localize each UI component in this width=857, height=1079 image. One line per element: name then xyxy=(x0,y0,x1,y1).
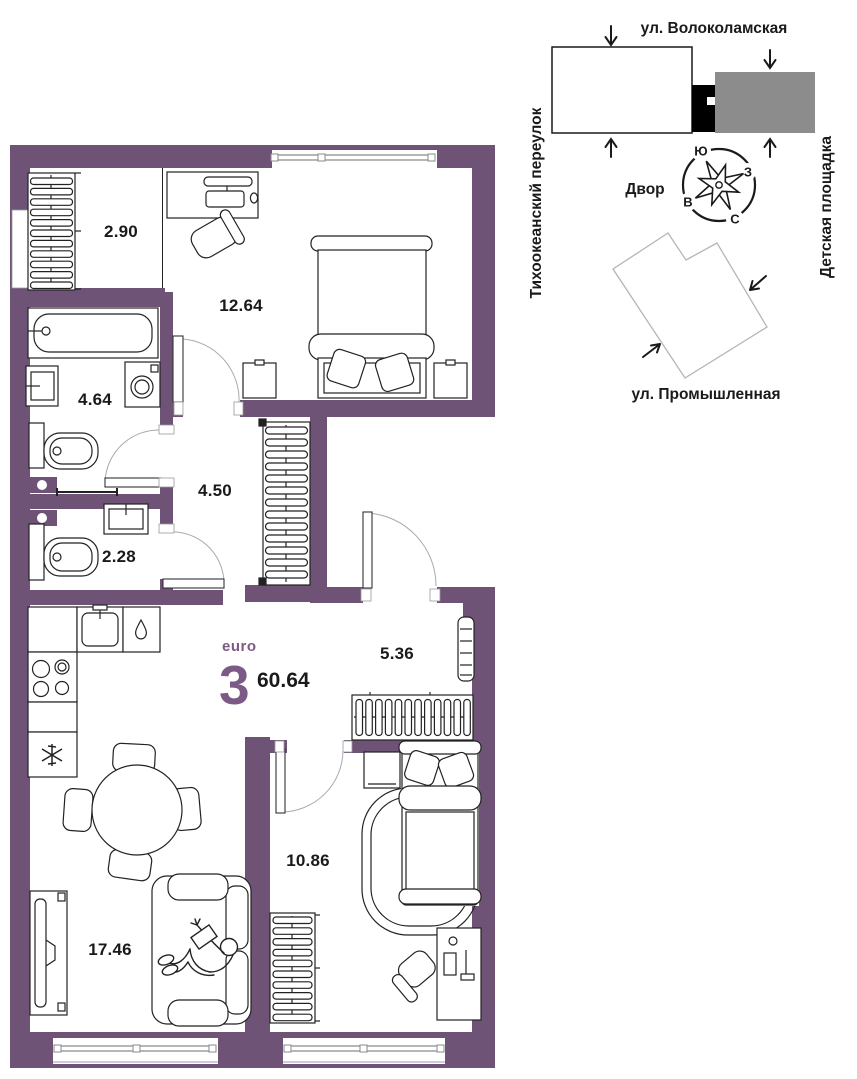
room-label-living: 17.46 xyxy=(88,940,132,960)
nightstand-bedroom2 xyxy=(364,752,400,788)
floorplan-page: 2.90 12.64 4.64 4.50 2.28 5.36 10.86 17.… xyxy=(0,0,857,1079)
wardrobe-entry xyxy=(352,692,473,740)
toilet-wc xyxy=(29,524,98,580)
total-area: 60.64 xyxy=(257,669,310,693)
desk-bedroom1 xyxy=(167,172,258,218)
playground-label: Детская площадка xyxy=(818,136,836,278)
courtyard-label: Двор xyxy=(625,181,664,199)
building-outline-white xyxy=(552,47,692,133)
wardrobe-bedroom2 xyxy=(270,913,320,1023)
wall-niches xyxy=(12,210,28,288)
bed-double xyxy=(243,236,467,398)
toilet-bathroom xyxy=(29,423,98,469)
room-label-wc: 2.28 xyxy=(102,547,136,567)
building-current-black xyxy=(692,85,715,132)
room-label-bedroom2: 10.86 xyxy=(286,851,330,871)
compass-north: С xyxy=(730,212,739,227)
desk-bedroom2 xyxy=(437,928,481,1020)
tv-unit xyxy=(30,891,67,1015)
stove xyxy=(28,652,77,702)
plan-drawing xyxy=(0,0,857,1079)
building-gray xyxy=(715,72,815,133)
room-label-bedroom1: 12.64 xyxy=(219,296,263,316)
bathtub xyxy=(28,308,158,358)
washbasin-wc xyxy=(104,504,148,534)
shoe-rack xyxy=(458,617,474,681)
building-outline-tilted xyxy=(613,233,767,378)
room-label-bathroom: 4.64 xyxy=(78,390,112,410)
building-current-notch xyxy=(707,97,715,105)
room-label-closet: 2.90 xyxy=(104,222,138,242)
compass-south: Ю xyxy=(694,144,707,159)
chair-bedroom2 xyxy=(387,947,444,1004)
compass-west: З xyxy=(744,165,752,180)
washing-machine xyxy=(125,362,160,407)
dining-set xyxy=(63,743,202,882)
street-label-top: ул. Волоколамская xyxy=(641,20,788,38)
street-label-bottom: ул. Промышленная xyxy=(631,386,780,404)
street-label-left: Тихоокеанский переулок xyxy=(528,108,546,299)
compass-rose xyxy=(679,141,756,228)
room-label-entry: 5.36 xyxy=(380,644,414,664)
fridge xyxy=(28,732,77,777)
room-label-hallway: 4.50 xyxy=(198,481,232,501)
wardrobe-hallway xyxy=(259,419,310,585)
washbasin-bathroom xyxy=(26,366,58,406)
wardrobe-closet-room xyxy=(28,173,81,290)
kitchen-cabinet xyxy=(28,702,77,732)
compass-east: В xyxy=(683,195,692,210)
kitchen-counter xyxy=(28,605,160,652)
unit-type-label: euro xyxy=(222,638,257,655)
unit-rooms-count: 3 xyxy=(219,658,250,713)
